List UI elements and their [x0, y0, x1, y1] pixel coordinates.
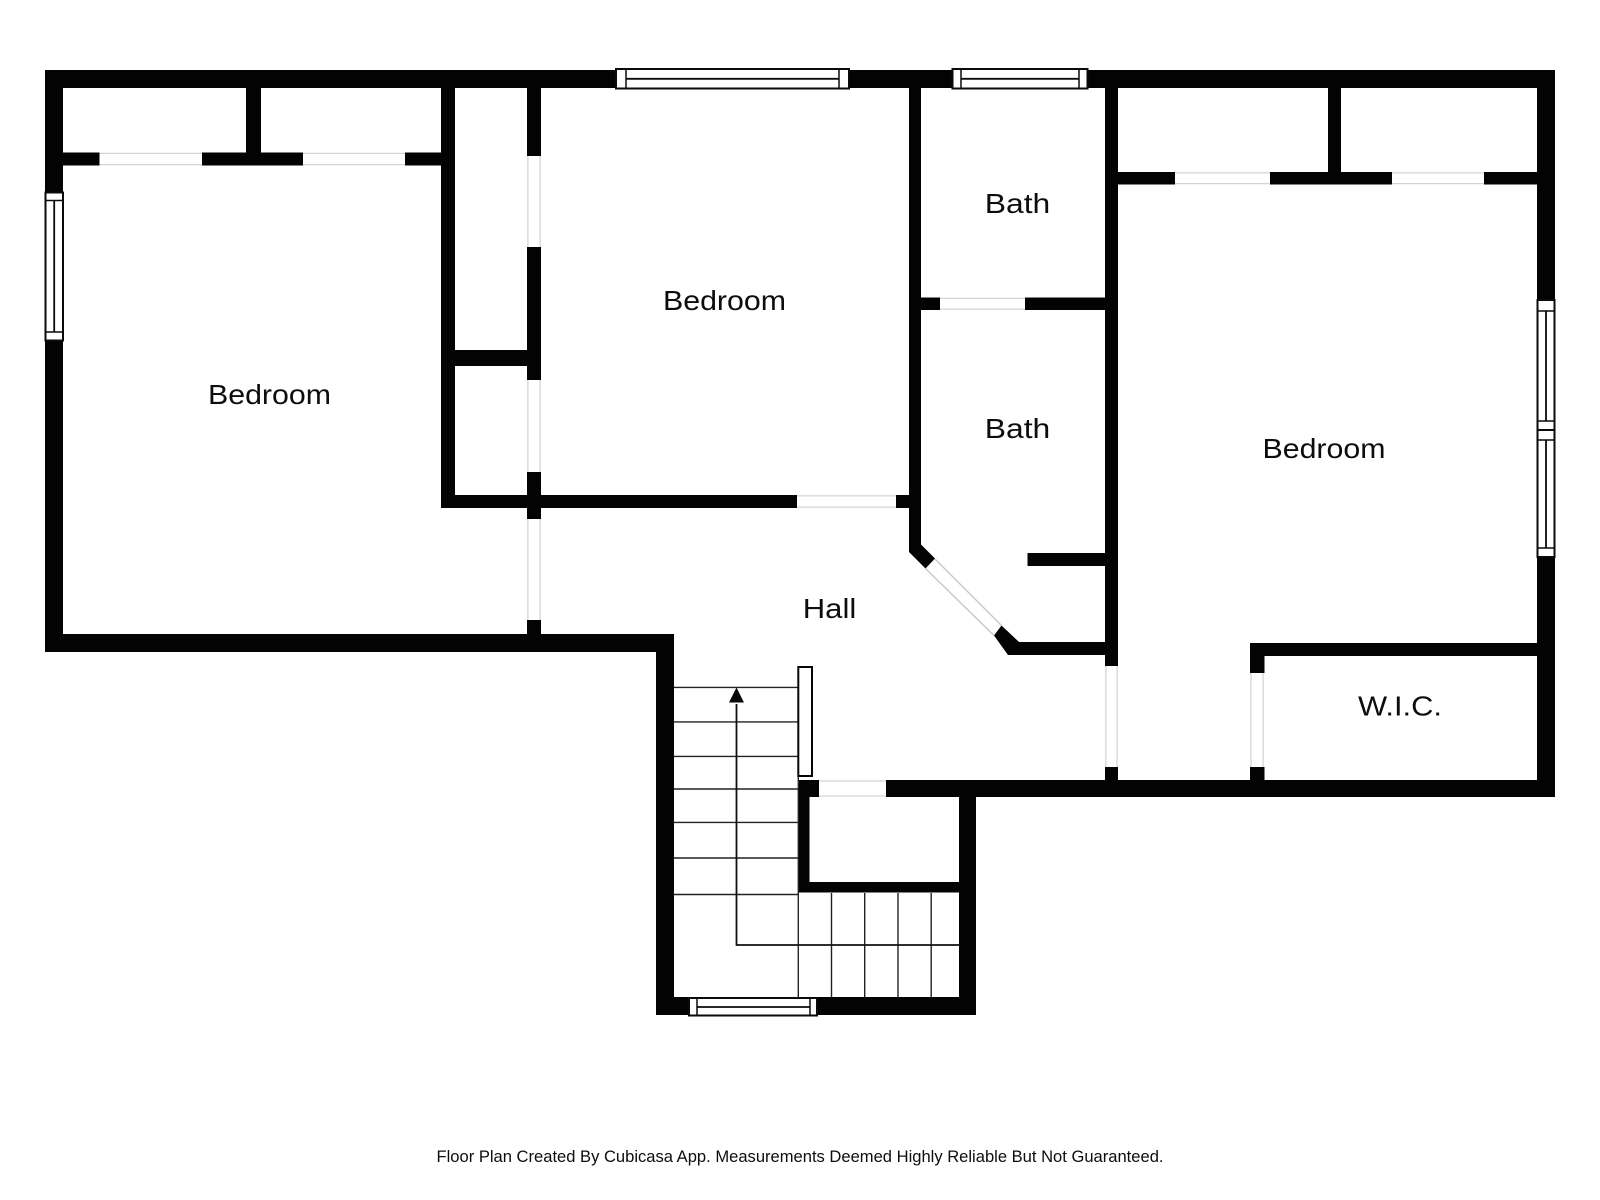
svg-text:Bedroom: Bedroom — [208, 379, 331, 410]
svg-text:W.I.C.: W.I.C. — [1358, 691, 1442, 722]
svg-text:Bedroom: Bedroom — [1263, 433, 1386, 464]
svg-text:Hall: Hall — [803, 593, 857, 624]
svg-text:Bath: Bath — [985, 413, 1051, 444]
svg-text:Bedroom: Bedroom — [663, 285, 786, 316]
svg-text:Bath: Bath — [985, 188, 1051, 219]
svg-text:Floor Plan Created By Cubicasa: Floor Plan Created By Cubicasa App. Meas… — [437, 1147, 1164, 1166]
